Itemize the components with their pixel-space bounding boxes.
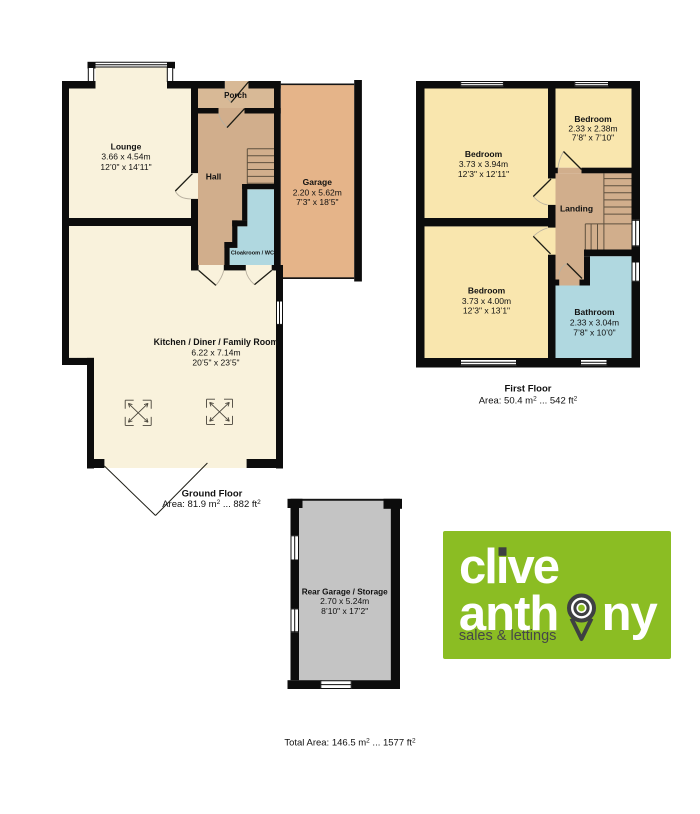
svg-text:Total Area: 146.5 m2 ... 1577: Total Area: 146.5 m2 ... 1577 ft2: [284, 738, 416, 749]
svg-text:Rear Garage / Storage: Rear Garage / Storage: [302, 588, 388, 597]
svg-text:20’5" x 23’5": 20’5" x 23’5": [192, 358, 239, 368]
svg-text:sales & lettings: sales & lettings: [459, 628, 557, 644]
svg-text:3.73 x 4.00m: 3.73 x 4.00m: [462, 296, 511, 306]
svg-text:12’0" x 14’11": 12’0" x 14’11": [100, 162, 151, 172]
svg-text:Area: 81.9 m2 ... 882 ft2: Area: 81.9 m2 ... 882 ft2: [162, 499, 261, 510]
svg-text:Bathroom: Bathroom: [574, 307, 615, 317]
svg-text:Bedroom: Bedroom: [574, 114, 612, 124]
svg-text:8’10" x 17’2": 8’10" x 17’2": [321, 606, 368, 616]
svg-text:12’3" x 12’11": 12’3" x 12’11": [458, 169, 509, 179]
svg-text:Porch: Porch: [224, 91, 247, 100]
svg-text:Landing: Landing: [560, 204, 593, 214]
svg-text:Bedroom: Bedroom: [465, 149, 503, 159]
svg-text:First Floor: First Floor: [505, 384, 552, 395]
svg-text:clive: clive: [459, 540, 559, 594]
svg-text:7’8" x 7’10": 7’8" x 7’10": [572, 133, 614, 143]
svg-text:Lounge: Lounge: [111, 141, 142, 151]
svg-text:7’8" x 10’0": 7’8" x 10’0": [573, 328, 615, 338]
svg-text:2.33 x 3.04m: 2.33 x 3.04m: [570, 317, 619, 327]
svg-text:Hall: Hall: [206, 172, 222, 182]
svg-text:Kitchen / Diner / Family Room: Kitchen / Diner / Family Room: [154, 337, 279, 347]
svg-text:Ground Floor: Ground Floor: [182, 489, 243, 500]
svg-text:6.22 x 7.14m: 6.22 x 7.14m: [191, 348, 240, 358]
svg-text:3.66 x 4.54m: 3.66 x 4.54m: [101, 152, 150, 162]
svg-text:12’3" x 13’1": 12’3" x 13’1": [463, 306, 510, 316]
svg-text:Bedroom: Bedroom: [468, 285, 506, 295]
svg-text:2.20 x 5.62m: 2.20 x 5.62m: [293, 187, 342, 197]
svg-text:ny: ny: [602, 587, 658, 641]
svg-text:Area: 50.4 m2 ... 542 ft2: Area: 50.4 m2 ... 542 ft2: [479, 396, 578, 407]
svg-text:2.70 x 5.24m: 2.70 x 5.24m: [320, 596, 369, 606]
svg-text:7’3" x 18’5": 7’3" x 18’5": [296, 197, 338, 207]
svg-text:Garage: Garage: [303, 177, 333, 187]
svg-text:3.73 x 3.94m: 3.73 x 3.94m: [459, 159, 508, 169]
svg-text:Cloakroom / WC: Cloakroom / WC: [231, 251, 274, 257]
